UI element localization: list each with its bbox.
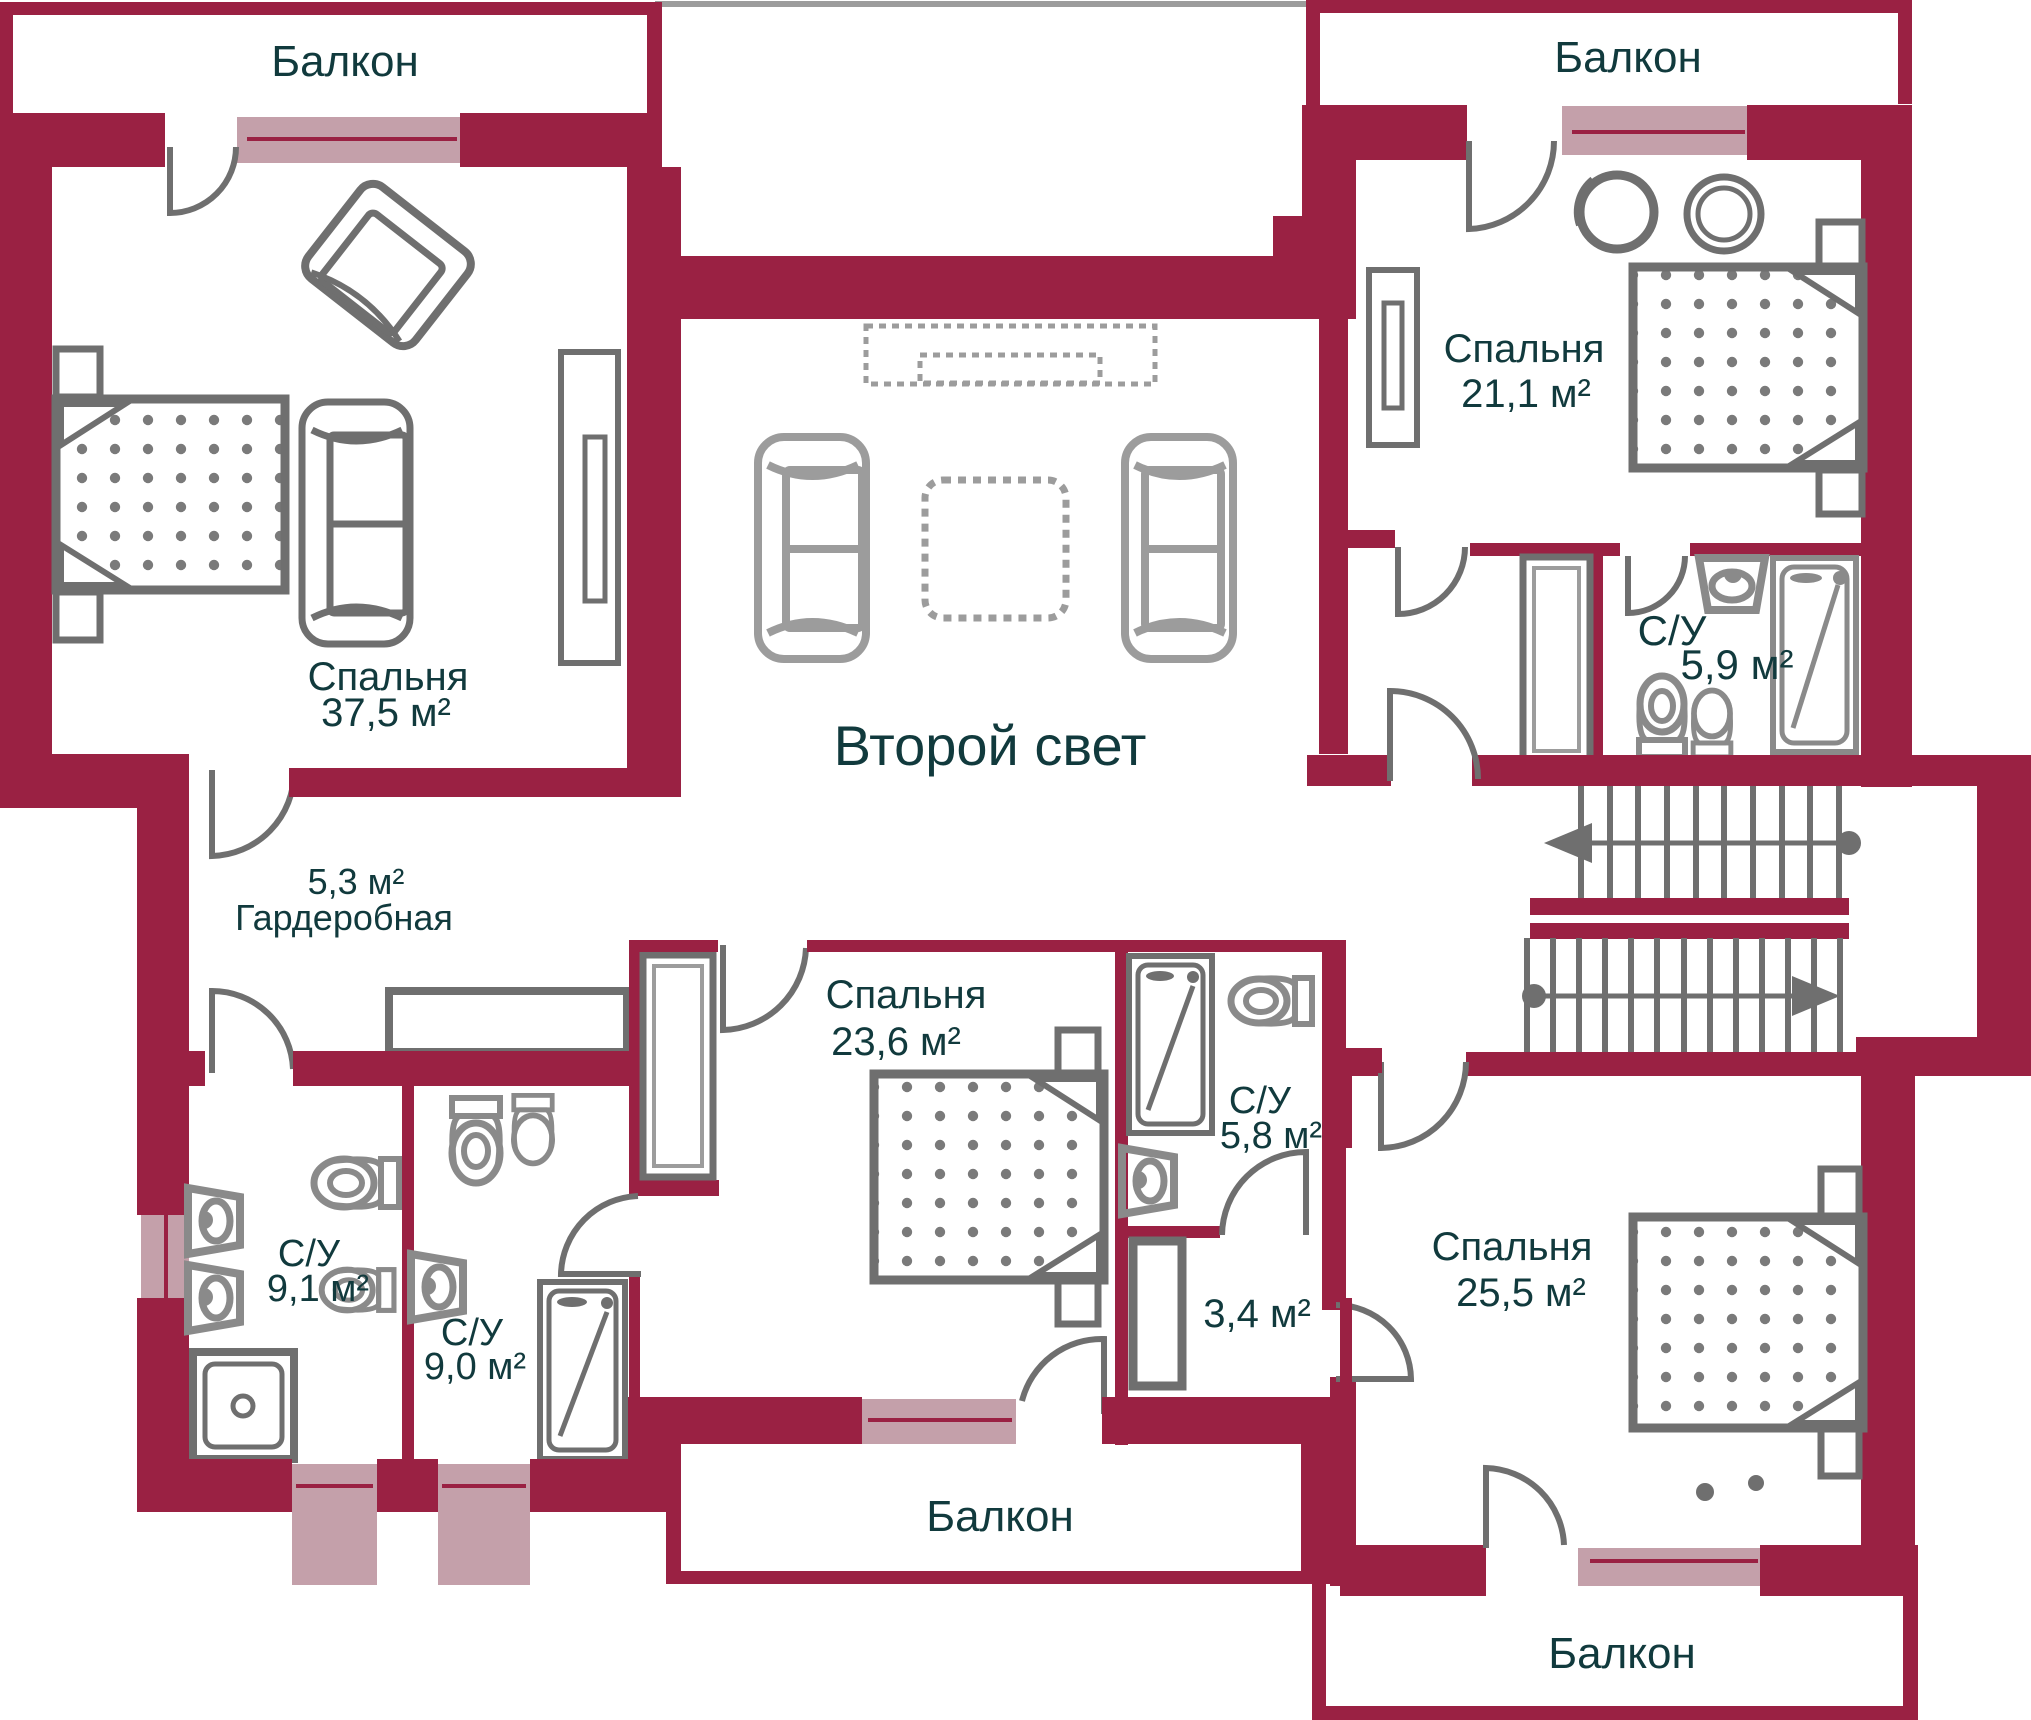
svg-text:5,8 м²: 5,8 м² (1220, 1115, 1322, 1157)
svg-text:3,4 м²: 3,4 м² (1203, 1292, 1311, 1336)
svg-text:23,6 м²: 23,6 м² (831, 1020, 961, 1064)
svg-text:Гардеробная: Гардеробная (235, 897, 453, 938)
svg-text:5,3 м²: 5,3 м² (308, 861, 405, 902)
svg-text:5,9 м²: 5,9 м² (1681, 641, 1794, 688)
svg-text:Спальня: Спальня (1444, 327, 1605, 371)
svg-text:37,5 м²: 37,5 м² (321, 691, 451, 735)
svg-text:Балкон: Балкон (926, 1492, 1074, 1541)
svg-text:25,5 м²: 25,5 м² (1456, 1271, 1586, 1315)
svg-text:9,0 м²: 9,0 м² (424, 1346, 526, 1388)
svg-text:21,1 м²: 21,1 м² (1461, 372, 1591, 416)
svg-text:9,1 м²: 9,1 м² (267, 1268, 369, 1310)
svg-text:Балкон: Балкон (271, 37, 419, 86)
svg-text:Балкон: Балкон (1554, 33, 1702, 82)
svg-text:Балкон: Балкон (1548, 1629, 1696, 1678)
svg-text:Второй свет: Второй свет (834, 714, 1147, 777)
svg-text:Спальня: Спальня (826, 973, 987, 1017)
svg-text:Спальня: Спальня (1432, 1225, 1593, 1269)
